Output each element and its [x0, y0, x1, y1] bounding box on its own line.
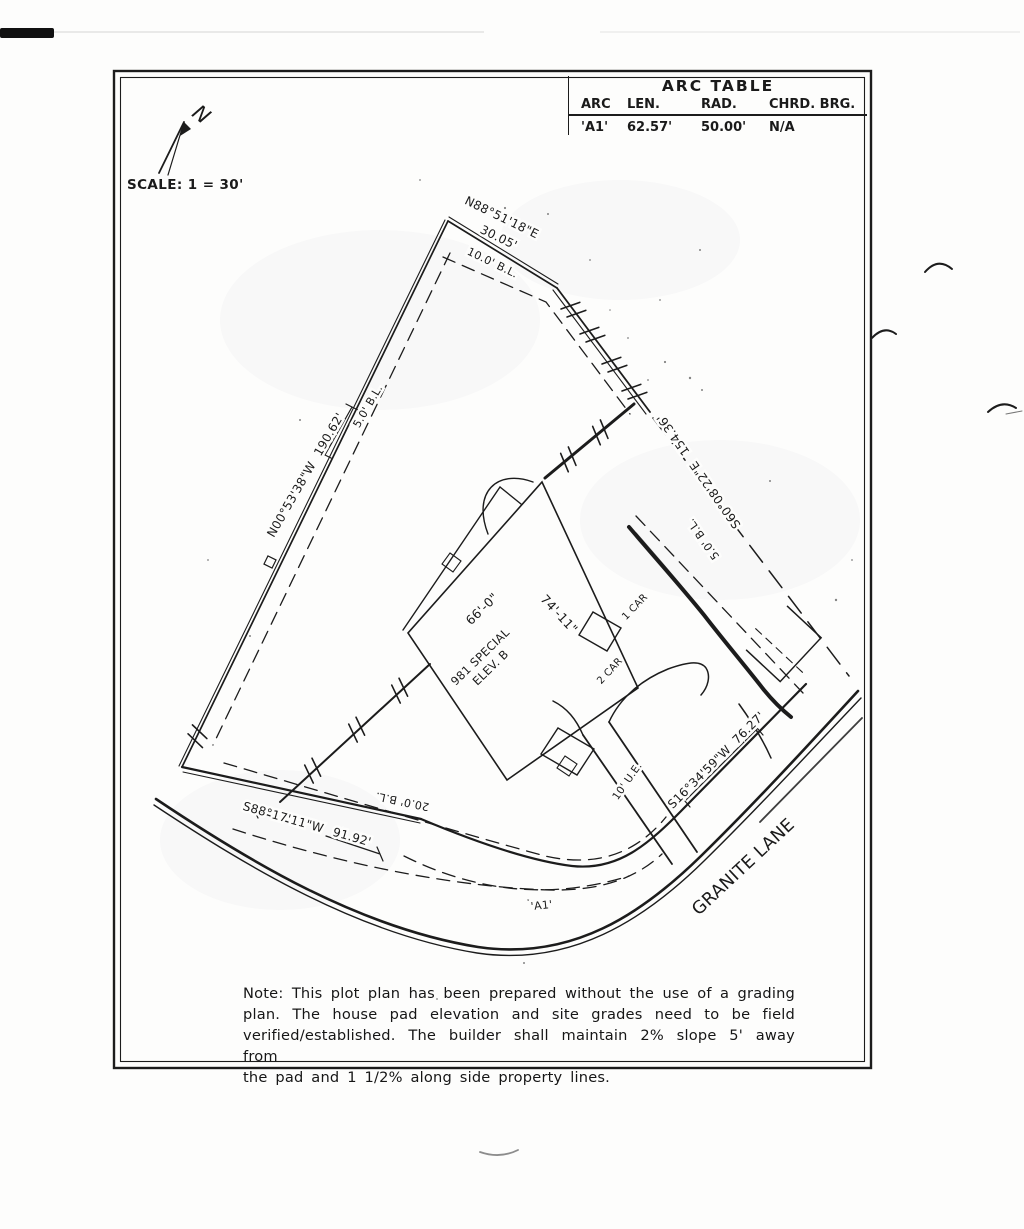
scale-label: SCALE: 1 = 30' [127, 177, 244, 193]
arc-table-header-arc: ARC [581, 97, 627, 112]
note-line-1: Note: This plot plan has been prepared w… [243, 983, 795, 1004]
chrd-value: N/A [769, 120, 879, 135]
street-name-label: GRANITE LANE [688, 815, 798, 920]
arc-value: 'A1' [581, 120, 627, 135]
arc-table-data-row: 'A1' 62.57' 50.00' N/A [569, 116, 867, 135]
arc-table-header-row: ARC LEN. RAD. CHRD. BRG. [569, 97, 867, 116]
arc-table: ARC TABLE ARC LEN. RAD. CHRD. BRG. 'A1' … [568, 76, 867, 135]
frontage-bearing: S16°34'59"W [665, 743, 734, 812]
rad-value: 50.00' [701, 120, 769, 135]
garage-one-label: 1 CAR [620, 592, 650, 623]
arc-table-header-chrd: CHRD. BRG. [769, 97, 879, 112]
garage-two-label: 2 CAR [595, 656, 625, 687]
curved-porch [483, 478, 533, 534]
house-length-label: 74'-11" [538, 591, 581, 636]
arc-callout-label: 'A1' [530, 898, 553, 913]
boundary-monument-marker [264, 556, 276, 568]
note-line-2: plan. The house pad elevation and site g… [243, 1004, 795, 1025]
plot-note: Note: This plot plan has been prepared w… [243, 983, 795, 1088]
len-value: 62.57' [627, 120, 701, 135]
north-arrow-label: N [188, 100, 215, 129]
bearing-label-frontage: S16°34'59"W76.27' [665, 709, 767, 811]
driveway [553, 663, 771, 864]
bearing-label-west: N00°53'38"W190.62' [264, 410, 347, 539]
arc-table-title: ARC TABLE [569, 76, 867, 97]
west-distance: 190.62' [311, 410, 347, 458]
arc-table-header-len: LEN. [627, 97, 701, 112]
house-model-label: 981 SPECIAL ELEV. B [448, 625, 523, 699]
house-width-label: 66'-0" [463, 590, 502, 628]
note-line-3: verified/established. The builder shall … [243, 1025, 795, 1067]
arc-table-header-rad: RAD. [701, 97, 769, 112]
plot-plan-page: N [0, 0, 1024, 1229]
north-arrow: N [159, 100, 215, 175]
one-car-garage-bump [579, 612, 621, 651]
west-bearing: N00°53'38"W [264, 459, 319, 539]
note-line-4: the pad and 1 1/2% along side property l… [243, 1067, 795, 1088]
